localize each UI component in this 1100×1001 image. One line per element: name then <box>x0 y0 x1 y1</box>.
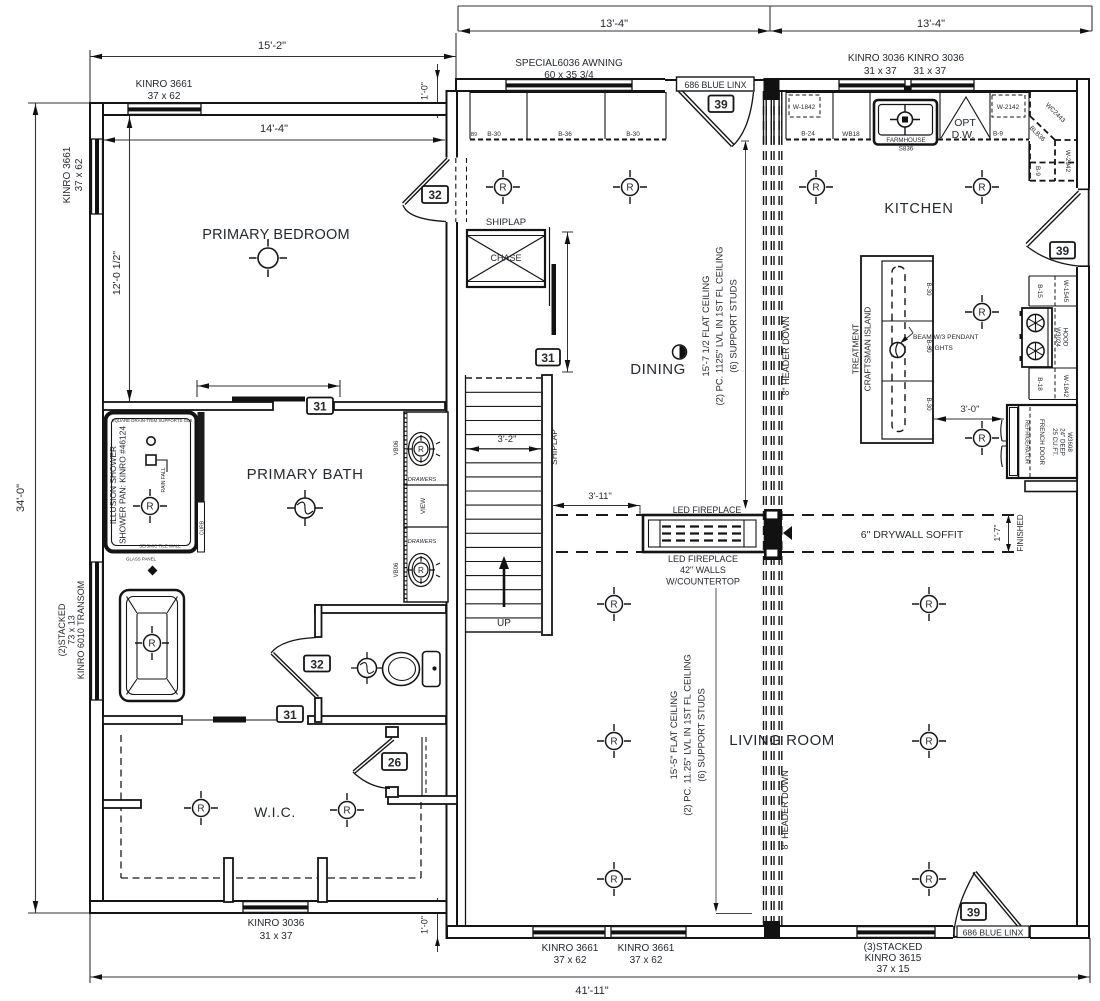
svg-text:B-36: B-36 <box>558 131 572 138</box>
svg-text:3'-0": 3'-0" <box>961 404 980 415</box>
svg-text:25 CU.FT.: 25 CU.FT. <box>1051 428 1058 456</box>
svg-text:LED FIREPLACE: LED FIREPLACE <box>668 554 738 564</box>
svg-text:12'-0 1/2": 12'-0 1/2" <box>111 251 123 296</box>
svg-text:LIGHTS: LIGHTS <box>929 345 953 352</box>
svg-text:(2)STACKED: (2)STACKED <box>57 603 67 656</box>
svg-text:(3)STACKED: (3)STACKED <box>864 942 923 953</box>
svg-text:CURB: CURB <box>200 520 206 535</box>
svg-text:GLASS PANEL: GLASS PANEL <box>126 557 156 562</box>
svg-text:1'-0": 1'-0" <box>420 82 430 100</box>
svg-text:FRENCH DOOR: FRENCH DOOR <box>1038 419 1045 466</box>
svg-text:37 x 62: 37 x 62 <box>630 955 663 966</box>
svg-text:VB06: VB06 <box>394 440 400 455</box>
svg-text:42" WALLS: 42" WALLS <box>680 565 726 575</box>
svg-text:B-30: B-30 <box>925 282 932 296</box>
svg-text:1'-0": 1'-0" <box>420 916 430 934</box>
svg-text:(6) SUPPORT STUDS: (6) SUPPORT STUDS <box>728 279 739 372</box>
svg-text:39: 39 <box>1056 244 1070 258</box>
svg-text:686 BLUE LINX: 686 BLUE LINX <box>963 928 1024 938</box>
svg-text:LIVING ROOM: LIVING ROOM <box>729 732 835 749</box>
svg-text:W/COUNTERTOP: W/COUNTERTOP <box>666 577 740 587</box>
svg-text:37 x 62: 37 x 62 <box>554 955 587 966</box>
svg-text:W-1842: W-1842 <box>1062 375 1069 398</box>
svg-text:13'-4": 13'-4" <box>917 18 945 30</box>
svg-text:31: 31 <box>283 708 297 722</box>
svg-text:KINRO 3615: KINRO 3615 <box>865 953 922 964</box>
svg-text:41'-11": 41'-11" <box>575 985 608 997</box>
svg-text:37 x 15: 37 x 15 <box>877 964 910 975</box>
svg-text:KINRO 3661: KINRO 3661 <box>542 943 599 954</box>
svg-text:B-30: B-30 <box>925 397 932 411</box>
svg-text:8" HEADER DOWN: 8" HEADER DOWN <box>781 316 791 395</box>
svg-text:W-2142: W-2142 <box>997 104 1020 111</box>
svg-text:34'-0": 34'-0" <box>15 484 27 512</box>
svg-text:W-1842: W-1842 <box>793 104 816 111</box>
svg-text:37 x 62: 37 x 62 <box>148 91 181 102</box>
svg-text:W3024: W3024 <box>1054 327 1061 347</box>
svg-text:SHIPLAP: SHIPLAP <box>486 217 526 228</box>
svg-text:KINRO 3036: KINRO 3036 <box>248 918 305 929</box>
svg-text:B9: B9 <box>471 132 477 138</box>
svg-text:24" DEEP: 24" DEEP <box>1059 428 1066 456</box>
svg-text:VB06: VB06 <box>394 562 400 577</box>
svg-text:KINRO 3661: KINRO 3661 <box>618 943 675 954</box>
svg-text:32: 32 <box>428 188 442 202</box>
svg-text:31: 31 <box>313 400 327 414</box>
svg-text:15'-2": 15'-2" <box>258 40 286 52</box>
svg-text:8" HEADER DOWN: 8" HEADER DOWN <box>780 770 790 849</box>
svg-text:B-9: B-9 <box>1034 166 1041 176</box>
svg-text:PRIMARY BEDROOM: PRIMARY BEDROOM <box>202 227 350 243</box>
svg-text:15'-5" FLAT CEILING: 15'-5" FLAT CEILING <box>668 691 679 780</box>
svg-text:KINRO 3661: KINRO 3661 <box>136 79 193 90</box>
svg-text:REFRIGERATOR: REFRIGERATOR <box>1024 420 1030 464</box>
svg-text:CHASE: CHASE <box>490 253 521 263</box>
svg-text:BEAM W/3 PENDANT: BEAM W/3 PENDANT <box>913 334 979 341</box>
svg-text:B-15: B-15 <box>1036 284 1043 298</box>
svg-text:KINRO 3661: KINRO 3661 <box>62 146 73 203</box>
svg-text:W-1545: W-1545 <box>1062 280 1069 303</box>
svg-text:B-18: B-18 <box>1036 377 1043 391</box>
svg-text:D.W.: D.W. <box>952 129 975 141</box>
svg-text:FARMHOUSE: FARMHOUSE <box>886 137 925 144</box>
svg-text:SEISMIC TILE WALL: SEISMIC TILE WALL <box>139 544 181 549</box>
svg-text:14'-4": 14'-4" <box>260 123 288 135</box>
svg-text:DRAWERS: DRAWERS <box>408 539 437 545</box>
svg-text:VIEW: VIEW <box>420 497 427 514</box>
svg-text:PRIMARY BATH: PRIMARY BATH <box>247 466 364 483</box>
svg-text:3'-11": 3'-11" <box>588 491 612 502</box>
svg-text:FINISHED: FINISHED <box>1016 514 1025 552</box>
svg-text:WB18: WB18 <box>842 131 860 138</box>
svg-text:39: 39 <box>714 98 728 112</box>
svg-text:W3608: W3608 <box>1066 432 1073 452</box>
svg-text:RAIN FALL: RAIN FALL <box>161 467 167 492</box>
svg-text:SHIPLAP: SHIPLAP <box>549 429 559 465</box>
svg-text:3'-2": 3'-2" <box>498 434 517 445</box>
svg-text:HOOD: HOOD <box>1062 328 1069 347</box>
svg-text:13'-4": 13'-4" <box>600 18 628 30</box>
svg-text:KINRO 6010 TRANSOM: KINRO 6010 TRANSOM <box>76 581 86 679</box>
svg-text:31 x 37: 31 x 37 <box>260 931 293 942</box>
svg-text:31 x 37 31 x 37: 31 x 37 31 x 37 <box>864 66 947 77</box>
svg-text:LED FIREPLACE: LED FIREPLACE <box>673 505 742 515</box>
svg-text:31: 31 <box>541 351 555 365</box>
svg-text:15'-7 1/2 FLAT CEILING: 15'-7 1/2 FLAT CEILING <box>700 276 711 377</box>
svg-text:60 x 35 3/4: 60 x 35 3/4 <box>544 70 594 81</box>
svg-text:S836: S836 <box>899 146 914 153</box>
svg-text:B-30: B-30 <box>626 131 640 138</box>
svg-text:(2) PC. 11.25" LVL IN 1ST FL C: (2) PC. 11.25" LVL IN 1ST FL CEILING <box>682 654 693 816</box>
svg-text:CRAFTSMAN ISLAND: CRAFTSMAN ISLAND <box>863 307 873 392</box>
svg-text:32: 32 <box>310 657 324 671</box>
svg-text:OPT: OPT <box>954 117 976 129</box>
svg-text:ILLUSION SHOWER: ILLUSION SHOWER <box>108 446 118 524</box>
svg-text:KINRO 3036 KINRO 3036: KINRO 3036 KINRO 3036 <box>848 53 965 64</box>
svg-text:SQUARE DRAIN-TRIM SUPPORTS GLS: SQUARE DRAIN-TRIM SUPPORTS GLS <box>112 418 193 423</box>
svg-text:(2) PC. 1125" LVL IN 1ST FL CE: (2) PC. 1125" LVL IN 1ST FL CEILING <box>714 247 725 406</box>
svg-text:DRAWERS: DRAWERS <box>408 477 437 483</box>
svg-text:UP: UP <box>497 618 511 629</box>
svg-text:DINING: DINING <box>630 361 686 378</box>
svg-text:B-30: B-30 <box>487 131 501 138</box>
svg-text:6" DRYWALL SOFFIT: 6" DRYWALL SOFFIT <box>861 529 964 541</box>
svg-text:686 BLUE LINX: 686 BLUE LINX <box>684 80 746 90</box>
svg-text:37 x 62: 37 x 62 <box>74 158 85 191</box>
svg-text:(6) SUPPORT STUDS: (6) SUPPORT STUDS <box>696 688 707 781</box>
svg-text:73 x 13: 73 x 13 <box>67 615 77 645</box>
svg-text:39: 39 <box>967 906 981 920</box>
svg-text:B-24: B-24 <box>801 131 815 138</box>
svg-text:W.I.C.: W.I.C. <box>254 804 296 820</box>
svg-text:TREATMENT: TREATMENT <box>851 324 861 375</box>
svg-text:1'-7": 1'-7" <box>992 525 1002 542</box>
svg-text:B-9: B-9 <box>993 131 1003 138</box>
svg-text:SPECIAL6036 AWNING: SPECIAL6036 AWNING <box>515 58 623 69</box>
svg-text:KITCHEN: KITCHEN <box>884 201 953 217</box>
svg-text:26: 26 <box>388 756 402 770</box>
svg-text:SHOWER PAN: KINRO #46124: SHOWER PAN: KINRO #46124 <box>118 426 128 544</box>
svg-text:W-2942: W-2942 <box>1064 150 1071 173</box>
